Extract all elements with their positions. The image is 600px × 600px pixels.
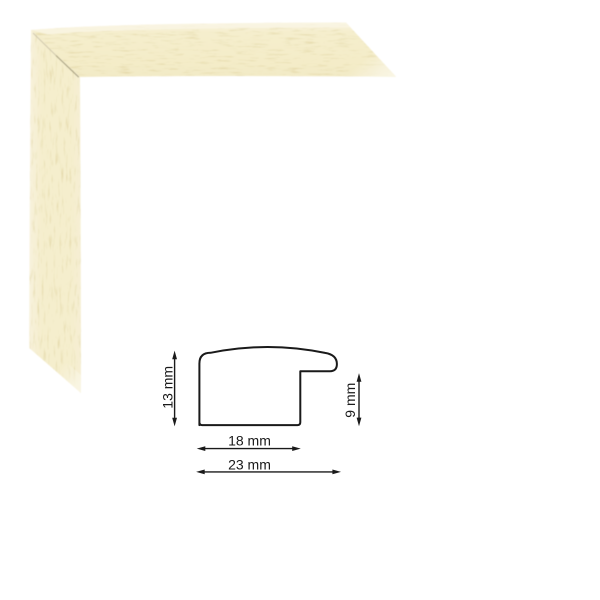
svg-text:23 mm: 23 mm: [228, 456, 271, 472]
svg-text:13 mm: 13 mm: [159, 366, 175, 409]
svg-text:9 mm: 9 mm: [342, 383, 358, 418]
svg-text:18 mm: 18 mm: [228, 433, 271, 449]
